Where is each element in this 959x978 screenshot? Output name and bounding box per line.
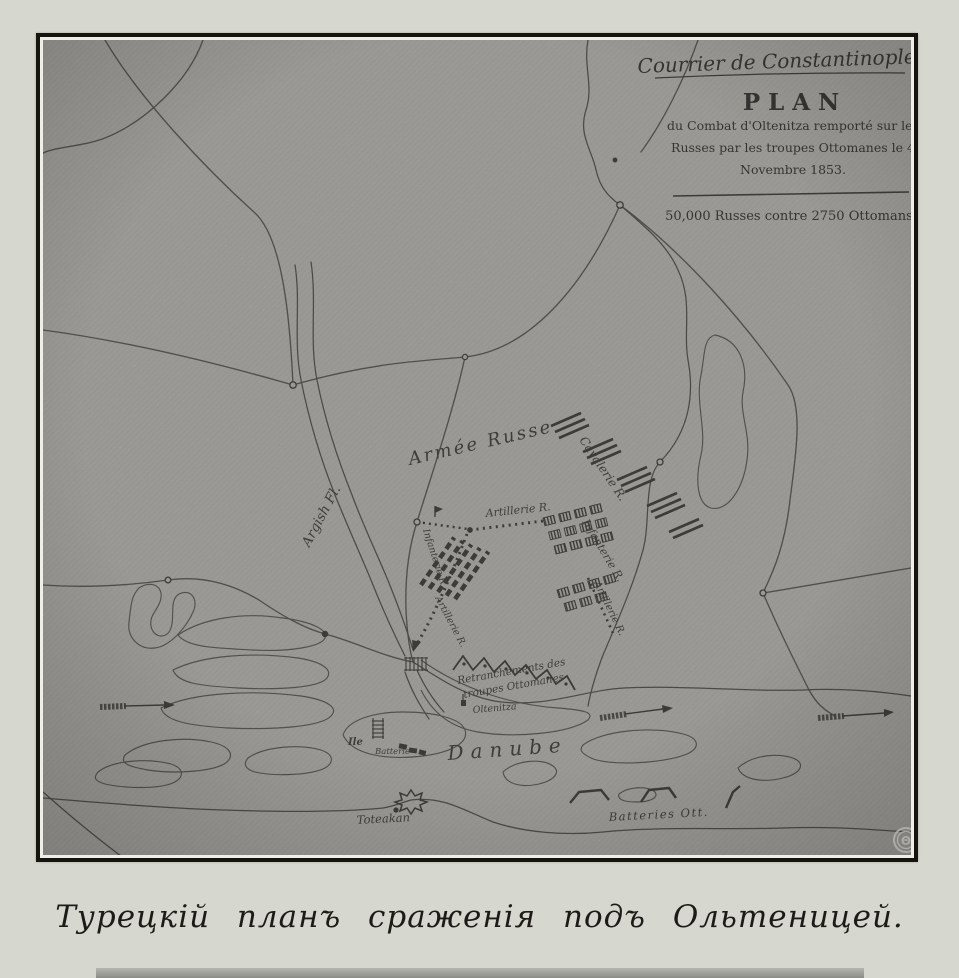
battle-map: Armée Russe Cavalerie R. Artillerie R. I… (43, 40, 911, 855)
scanned-book-page: Armée Russe Cavalerie R. Artillerie R. I… (0, 0, 959, 978)
scan-vignette (43, 40, 911, 855)
next-figure-edge (96, 968, 864, 978)
map-scan-area: Armée Russe Cavalerie R. Artillerie R. I… (43, 40, 911, 855)
map-frame: Armée Russe Cavalerie R. Artillerie R. I… (36, 33, 918, 862)
figure-caption: Турецкій планъ сраженія подъ Ольтеницей. (0, 899, 959, 935)
